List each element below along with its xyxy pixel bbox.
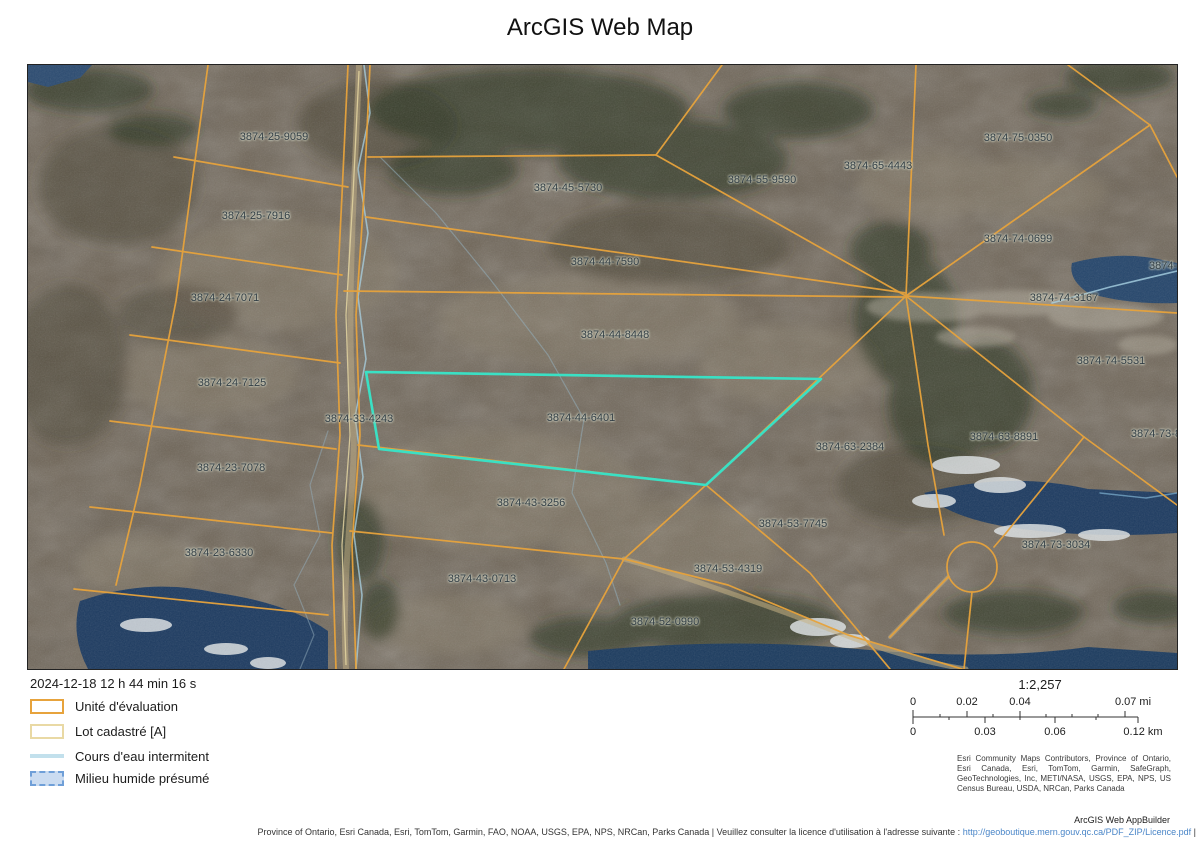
license-link[interactable]: http://geoboutique.mern.gouv.qc.ca/PDF_Z… bbox=[963, 827, 1191, 837]
legend-item-lot-cadastre: Lot cadastré [A] bbox=[30, 723, 166, 740]
scale-bar: 0 0.02 0.04 0.07 mi 0 0.03 0.06 0.12 km bbox=[905, 696, 1175, 742]
scale-km-label: 0.12 km bbox=[1123, 726, 1162, 738]
cours-eau-swatch-icon bbox=[30, 754, 64, 758]
lot-cadastre-swatch-icon bbox=[30, 724, 64, 739]
legend-label: Cours d'eau intermitent bbox=[75, 749, 209, 764]
scale-mi-label: 0.02 bbox=[956, 696, 977, 708]
legend-label: Unité d'évaluation bbox=[75, 699, 178, 714]
license-line: Province of Ontario, Esri Canada, Esri, … bbox=[96, 827, 1196, 837]
map-canvas: 3874-25-90593874-45-57303874-55-95903874… bbox=[27, 64, 1178, 670]
scale-mi-label: 0.04 bbox=[1009, 696, 1030, 708]
license-suffix: | bbox=[1191, 827, 1196, 837]
milieu-humide-swatch-icon bbox=[30, 771, 64, 786]
scale-mi-label: 0.07 mi bbox=[1115, 696, 1151, 708]
map-attribution: Esri Community Maps Contributors, Provin… bbox=[957, 754, 1171, 794]
aerial-imagery bbox=[28, 65, 1177, 669]
legend-item-milieu-humide: Milieu humide présumé bbox=[30, 770, 209, 787]
app-credit: ArcGIS Web AppBuilder bbox=[1074, 815, 1170, 825]
scale-ratio: 1:2,257 bbox=[905, 677, 1175, 692]
scale-mi-label: 0 bbox=[910, 696, 916, 708]
legend-item-cours-eau: Cours d'eau intermitent bbox=[30, 748, 209, 765]
scale-km-label: 0.03 bbox=[974, 726, 995, 738]
page-title: ArcGIS Web Map bbox=[0, 14, 1200, 42]
scale-km-label: 0.06 bbox=[1044, 726, 1065, 738]
license-prefix: Province of Ontario, Esri Canada, Esri, … bbox=[257, 827, 962, 837]
legend-label: Milieu humide présumé bbox=[75, 771, 209, 786]
map-timestamp: 2024-12-18 12 h 44 min 16 s bbox=[30, 676, 196, 691]
scale-km-label: 0 bbox=[910, 726, 916, 738]
legend-item-unite-evaluation: Unité d'évaluation bbox=[30, 698, 178, 715]
print-layout-page: ArcGIS Web Map bbox=[0, 0, 1200, 848]
legend-label: Lot cadastré [A] bbox=[75, 724, 166, 739]
unite-evaluation-swatch-icon bbox=[30, 699, 64, 714]
scale-bar-ticks-icon bbox=[905, 709, 1175, 725]
